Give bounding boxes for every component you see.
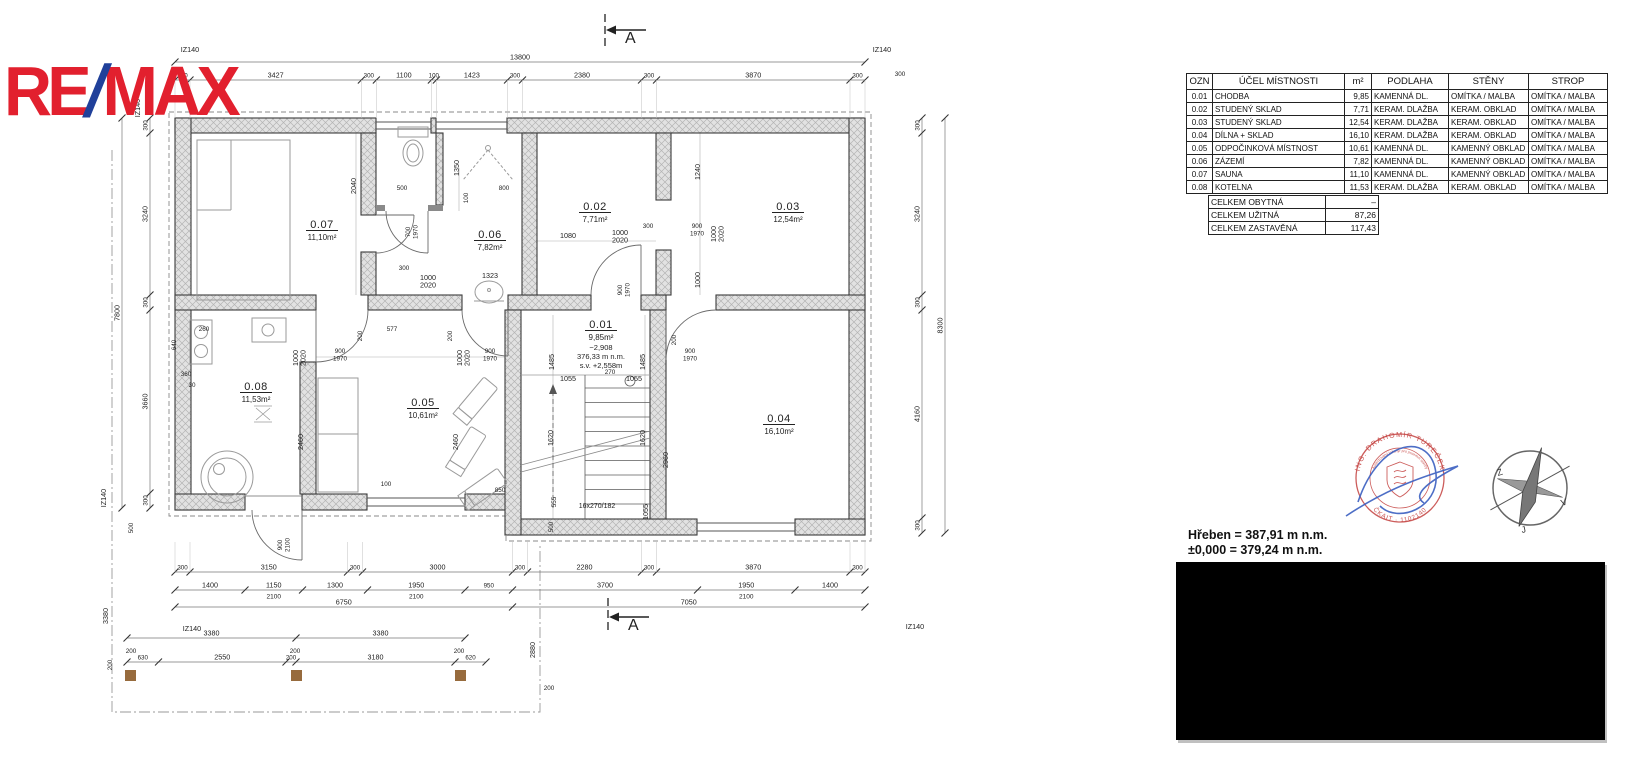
dim-text: 3380 (101, 608, 110, 624)
dim-text: 1000 (693, 272, 702, 288)
schedule-row: 0.01CHODBA9,85KAMENNÁ DL.OMÍTKA / MALBAO… (1187, 90, 1608, 103)
schedule-cell: OMÍTKA / MALBA (1529, 90, 1608, 103)
dim-text-sub: 1970 (683, 356, 698, 363)
dim-chain: 8300 (936, 115, 949, 537)
dim-label: 3380 (204, 629, 220, 638)
dim-label: 3870 (745, 71, 761, 80)
room-label: 0.0510,61m² (407, 397, 439, 420)
walls (175, 118, 865, 535)
section-label: A (625, 30, 636, 47)
schedule-cell: 7,82 (1345, 155, 1372, 168)
svg-text:0.08: 0.08 (244, 381, 267, 393)
dim-text: 850 (495, 487, 506, 494)
dim-text-sub: 2020 (299, 350, 308, 366)
stairs (521, 375, 650, 519)
area-summary: CELKEM OBYTNÁ–CELKEM UŽITNÁ87,26CELKEM Z… (1208, 195, 1379, 235)
dim-label: 6750 (336, 598, 352, 607)
schedule-cell: OMÍTKA / MALBA (1529, 129, 1608, 142)
schedule-cell: CHODBA (1213, 90, 1345, 103)
summary-row: CELKEM ZASTAVĚNÁ117,43 (1209, 222, 1379, 235)
dim-text: 200 (454, 648, 465, 655)
dim-label: 300 (510, 73, 521, 80)
dim-label: 1100 (396, 71, 411, 80)
dim-text: 500 (397, 185, 408, 192)
dim-text: 1055 (560, 374, 576, 383)
dim-text: 200 (107, 659, 114, 670)
dim-label: 100 (429, 73, 440, 80)
dim-text: 2460 (451, 434, 460, 450)
dim-label: 3660 (141, 394, 150, 410)
svg-text:9,85m²: 9,85m² (589, 333, 614, 342)
dim-text: 1350 (452, 160, 461, 176)
dim-label: 300 (515, 565, 526, 572)
dim-text: 260 (199, 326, 210, 333)
windows (367, 122, 795, 531)
schedule-cell: STUDENÝ SKLAD (1213, 116, 1345, 129)
dim-label: 200 (286, 655, 297, 662)
dim-text: 700 (405, 226, 412, 237)
dim-label: 300 (915, 120, 922, 131)
schedule-cell: 11,53 (1345, 181, 1372, 194)
svg-text:10,61m²: 10,61m² (408, 411, 438, 420)
schedule-cell: KERAM. DLAŽBA (1372, 116, 1449, 129)
dim-text: 640 (171, 339, 178, 350)
dim-text: 200 (447, 330, 454, 341)
dim-text: 1485 (547, 354, 556, 370)
svg-text:0.03: 0.03 (776, 201, 799, 213)
pergola-posts (125, 670, 466, 681)
dim-label: 1400 (202, 581, 218, 590)
dim-text-sub: 1970 (413, 225, 420, 240)
schedule-row: 0.04DÍLNA + SKLAD16,10KERAM. DLAŽBAKERAM… (1187, 129, 1608, 142)
dim-label: 300 (915, 520, 922, 531)
schedule-header: ÚČEL MÍSTNOSTI (1213, 74, 1345, 90)
schedule-cell: 11,10 (1345, 168, 1372, 181)
svg-text:12,54m²: 12,54m² (773, 215, 803, 224)
dim-label: 1950 (738, 581, 754, 590)
dim-text: 200 (544, 685, 555, 692)
dim-label: 2280 (577, 563, 593, 572)
dim-chain: 30032403004160300 (913, 115, 926, 537)
svg-text:11,53m²: 11,53m² (242, 395, 271, 404)
room-label: 0.067,82m² (474, 229, 506, 252)
summary-value: 87,26 (1326, 209, 1379, 222)
dim-chain: 63025502003180620 (124, 653, 490, 666)
section-mark-top: A (605, 14, 646, 47)
dim-label: 630 (138, 655, 149, 662)
summary-label: CELKEM UŽITNÁ (1209, 209, 1326, 222)
schedule-cell: 0.01 (1187, 90, 1213, 103)
schedule-cell: OMÍTKA / MALBA (1529, 181, 1608, 194)
lounger (446, 426, 487, 476)
schedule-cell: ZÁZEMÍ (1213, 155, 1345, 168)
dim-label: 2380 (574, 71, 590, 80)
dim-label: 300 (852, 73, 863, 80)
schedule-header: m² (1345, 74, 1372, 90)
dim-label: 300 (644, 565, 655, 572)
dim-label: 3380 (373, 629, 389, 638)
dim-label: 4160 (913, 406, 922, 422)
dim-text: 30 (188, 382, 196, 389)
schedule-row: 0.07SAUNA11,10KAMENNÁ DL.KAMENNÝ OBKLADO… (1187, 168, 1608, 181)
summary-row: CELKEM UŽITNÁ87,26 (1209, 209, 1379, 222)
dim-label: 3000 (430, 563, 446, 572)
svg-text:s.v. +2,558m: s.v. +2,558m (580, 361, 623, 370)
summary-value: 117,43 (1326, 222, 1379, 235)
dim-text: 300 (399, 265, 410, 272)
room-schedule: OZNÚČEL MÍSTNOSTIm²PODLAHASTĚNYSTROP 0.0… (1186, 73, 1608, 235)
dim-label: 300 (852, 565, 863, 572)
sink (252, 318, 286, 342)
dim-text: 900 (277, 539, 284, 550)
dim-chain: 30032403003660300 (141, 115, 154, 512)
dim-text: 300 (643, 223, 654, 230)
schedule-cell: 0.08 (1187, 181, 1213, 194)
svg-text:7,82m²: 7,82m² (478, 243, 503, 252)
summary-label: CELKEM ZASTAVĚNÁ (1209, 222, 1326, 235)
dim-label: 7800 (113, 305, 122, 321)
dim-text: IZ140 (873, 45, 891, 54)
svg-text:7,71m²: 7,71m² (583, 215, 608, 224)
schedule-cell: OMÍTKA / MALBA (1529, 116, 1608, 129)
schedule-cell: KAMENNÝ OBKLAD (1449, 142, 1529, 155)
schedule-cell: KAMENNÁ DL. (1372, 168, 1449, 181)
dim-text: 1055 (626, 374, 642, 383)
dim-text: 360 (181, 371, 192, 378)
dim-text: 900 (685, 348, 696, 355)
schedule-header: PODLAHA (1372, 74, 1449, 90)
schedule-cell: DÍLNA + SKLAD (1213, 129, 1345, 142)
schedule-cell: KERAM. OBKLAD (1449, 103, 1529, 116)
schedule-cell: 0.07 (1187, 168, 1213, 181)
dim-text: 200 (290, 648, 301, 655)
dim-label: 300 (143, 297, 150, 308)
dim-chain: 33803380 (124, 629, 469, 642)
compass-south-label: J (1520, 524, 1526, 535)
dim-chain: 7800 (113, 115, 126, 512)
section-mark-bottom: A (608, 598, 649, 634)
schedule-cell: KAMENNÝ OBKLAD (1449, 168, 1529, 181)
dim-text: 900 (692, 223, 703, 230)
svg-text:0.02: 0.02 (583, 201, 606, 213)
svg-text:0.05: 0.05 (411, 397, 434, 409)
dim-text: 100 (381, 481, 392, 488)
schedule-cell: 12,54 (1345, 116, 1372, 129)
dim-text: 200 (126, 648, 137, 655)
dim-text: 900 (485, 348, 496, 355)
dim-label: 3870 (745, 563, 761, 572)
schedule-cell: 0.05 (1187, 142, 1213, 155)
dim-text: 1055 (641, 504, 650, 520)
schedule-header: STROP (1529, 74, 1608, 90)
schedule-row: 0.05ODPOČINKOVÁ MÍSTNOST10,61KAMENNÁ DL.… (1187, 142, 1608, 155)
schedule-cell: 7,71 (1345, 103, 1372, 116)
schedule-cell: STUDENÝ SKLAD (1213, 103, 1345, 116)
dim-label: 8300 (936, 318, 945, 334)
authorization-stamp: ING. DRAHOMÍR TUREČEK Autorizovaný inžen… (1328, 424, 1488, 549)
dim-text: 1080 (560, 231, 576, 240)
schedule-cell: 16,10 (1345, 129, 1372, 142)
dim-label: 300 (143, 495, 150, 506)
dim-text: 300 (895, 71, 906, 78)
dim-label: 300 (350, 565, 361, 572)
dim-sublabel: 2100 (267, 594, 282, 601)
svg-text:376,33 m n.m.: 376,33 m n.m. (577, 352, 625, 361)
schedule-cell: KERAM. OBKLAD (1449, 116, 1529, 129)
schedule-cell: OMÍTKA / MALBA (1529, 168, 1608, 181)
zero-level: ±0,000 = 379,24 m n.m. (1188, 543, 1327, 558)
svg-text:0.04: 0.04 (767, 413, 790, 425)
schedule-cell: ODPOČINKOVÁ MÍSTNOST (1213, 142, 1345, 155)
dim-sublabel: 2100 (739, 594, 754, 601)
lounger (453, 377, 498, 425)
dim-label: 3150 (261, 563, 277, 572)
dim-text-sub: 2020 (717, 226, 726, 242)
dim-label: 3700 (597, 581, 613, 590)
dim-label: 3427 (268, 71, 284, 80)
dim-text: 270 (605, 369, 616, 376)
dim-label: 1300 (327, 581, 343, 590)
section-label: A (628, 617, 639, 634)
dim-label: 3180 (368, 653, 384, 662)
dim-text: 500 (128, 522, 135, 533)
schedule-row: 0.03STUDENÝ SKLAD12,54KERAM. DLAŽBAKERAM… (1187, 116, 1608, 129)
schedule-cell: 0.06 (1187, 155, 1213, 168)
stamp-emblem (1387, 462, 1413, 497)
redacted-area (1176, 562, 1605, 740)
dim-text: 577 (387, 326, 398, 333)
dim-label: 1950 (408, 581, 424, 590)
dim-label: 620 (465, 655, 476, 662)
dim-text-sub: 2020 (420, 281, 436, 290)
dim-label: 1423 (464, 71, 480, 80)
dim-label: 950 (484, 583, 495, 590)
dim-text: 1620 (546, 430, 555, 446)
schedule-cell: KERAM. DLAŽBA (1372, 103, 1449, 116)
dim-text-sub: 2020 (612, 236, 628, 245)
dim-label: 1150 (266, 581, 281, 590)
schedule-cell: SAUNA (1213, 168, 1345, 181)
dim-text: 200 (671, 334, 678, 345)
dim-text: IZ140 (183, 624, 201, 633)
dim-text: 2460 (296, 434, 305, 450)
dim-text: IZ140 (906, 622, 924, 631)
room-label: 0.0416,10m² (763, 413, 795, 436)
dim-label: 1400 (822, 581, 838, 590)
dim-label: 300 (364, 73, 375, 80)
compass-rose: Z V J (1482, 438, 1582, 538)
schedule-header: OZN (1187, 74, 1213, 90)
dim-label: 300 (644, 73, 655, 80)
schedule-cell: KAMENNÁ DL. (1372, 90, 1449, 103)
dim-text: 555 (551, 496, 558, 507)
dim-text-sub: 1970 (690, 231, 705, 238)
site-boundary-lines (112, 112, 871, 712)
dim-text-sub: 1970 (333, 356, 348, 363)
dim-text: 1323 (482, 271, 498, 280)
dim-text: 800 (499, 185, 510, 192)
schedule-row: 0.02STUDENÝ SKLAD7,71KERAM. DLAŽBAKERAM.… (1187, 103, 1608, 116)
dim-label: 300 (915, 297, 922, 308)
schedule-cell: OMÍTKA / MALBA (1449, 90, 1529, 103)
dim-text: 2960 (661, 452, 670, 468)
flue-symbol (254, 406, 272, 422)
room-label: 0.0711,10m² (306, 219, 338, 242)
svg-text:0.01: 0.01 (589, 319, 612, 331)
stamp-title-arc: Autorizovaný inženýr pro pozemní stavby (1371, 449, 1428, 470)
schedule-cell: KAMENNÝ OBKLAD (1449, 155, 1529, 168)
stair-note: 16x270/182 (579, 503, 616, 510)
schedule-cell: KAMENNÁ DL. (1372, 142, 1449, 155)
schedule-cell: KERAM. OBKLAD (1449, 181, 1529, 194)
schedule-cell: 10,61 (1345, 142, 1372, 155)
room-label: 0.027,71m² (579, 201, 611, 224)
svg-text:16,10m²: 16,10m² (764, 427, 794, 436)
dim-text: 100 (463, 192, 470, 203)
compass-west-label: Z (1496, 467, 1505, 478)
svg-text:11,10m²: 11,10m² (308, 233, 337, 242)
schedule-cell: OMÍTKA / MALBA (1529, 142, 1608, 155)
schedule-cell: KAMENNÁ DL. (1372, 155, 1449, 168)
dim-chain: 1400115021001300195021009503700195021001… (172, 581, 869, 601)
room-label: 0.019,85m²−2,908376,33 m n.m.s.v. +2,558… (577, 319, 625, 370)
washbasin (474, 281, 504, 303)
dim-text: 900 (335, 348, 346, 355)
room-schedule-table: OZNÚČEL MÍSTNOSTIm²PODLAHASTĚNYSTROP 0.0… (1186, 73, 1608, 194)
schedule-cell: 0.03 (1187, 116, 1213, 129)
dim-label: 3240 (913, 206, 922, 222)
svg-text:−2,908: −2,908 (589, 343, 612, 352)
dim-text: 1485 (638, 354, 647, 370)
logo-re: RE (4, 52, 87, 130)
schedule-row: 0.06ZÁZEMÍ7,82KAMENNÁ DL.KAMENNÝ OBKLADO… (1187, 155, 1608, 168)
svg-text:0.07: 0.07 (310, 219, 333, 231)
schedule-cell: KERAM. DLAŽBA (1372, 129, 1449, 142)
level-notes: Hřeben = 387,91 m n.m. ±0,000 = 379,24 m… (1188, 528, 1327, 558)
schedule-cell: KOTELNA (1213, 181, 1345, 194)
schedule-cell: 0.02 (1187, 103, 1213, 116)
dim-text: 2040 (349, 178, 358, 194)
dim-text: 900 (617, 284, 624, 295)
dim-text-sub: 1970 (625, 283, 632, 298)
summary-value: – (1326, 196, 1379, 209)
dim-label: 13800 (510, 53, 530, 62)
shower (463, 146, 513, 181)
dim-text-sub: 2100 (285, 538, 292, 553)
summary-row: CELKEM OBYTNÁ– (1209, 196, 1379, 209)
dim-label: 300 (177, 565, 188, 572)
schedule-cell: OMÍTKA / MALBA (1529, 103, 1608, 116)
ridge-level: Hřeben = 387,91 m n.m. (1188, 528, 1327, 543)
dim-label: 3240 (141, 206, 150, 222)
schedule-cell: 9,85 (1345, 90, 1372, 103)
cupboard (318, 378, 358, 492)
dim-text: 2880 (528, 642, 537, 658)
dim-text-sub: 2020 (463, 350, 472, 366)
schedule-cell: KERAM. DLAŽBA (1372, 181, 1449, 194)
dim-text: IZ140 (99, 489, 108, 507)
schedule-header: STĚNY (1449, 74, 1529, 90)
dim-label: 2550 (214, 653, 230, 662)
room-label: 0.0811,53m² (240, 381, 272, 404)
drawing-sheet: A A 138003003427300110010014233002380300… (0, 0, 1629, 768)
svg-text:0.06: 0.06 (478, 229, 501, 241)
schedule-cell: KERAM. OBKLAD (1449, 129, 1529, 142)
compass-east-label: V (1560, 497, 1569, 508)
sauna-bench (197, 140, 290, 300)
dim-chain: 30034273001100100142330023803003870300 (172, 71, 869, 119)
schedule-row: 0.08KOTELNA11,53KERAM. DLAŽBAKERAM. OBKL… (1187, 181, 1608, 194)
dim-label: 7050 (681, 598, 697, 607)
schedule-cell: 0.04 (1187, 129, 1213, 142)
dim-chain: 13800 (172, 53, 869, 66)
dim-text: 500 (548, 521, 555, 532)
logo-max: MAX (103, 52, 237, 130)
thin-partitions (376, 205, 443, 211)
room-label: 0.0312,54m² (772, 201, 804, 224)
remax-logo: RE/MAX (4, 56, 236, 126)
dim-text: 200 (357, 330, 364, 341)
dim-text: 1240 (693, 164, 702, 180)
dim-text-sub: 1970 (483, 356, 498, 363)
dim-sublabel: 2100 (409, 594, 424, 601)
dim-text: 1620 (638, 430, 647, 446)
schedule-cell: OMÍTKA / MALBA (1529, 155, 1608, 168)
summary-label: CELKEM OBYTNÁ (1209, 196, 1326, 209)
toilet (398, 127, 428, 166)
